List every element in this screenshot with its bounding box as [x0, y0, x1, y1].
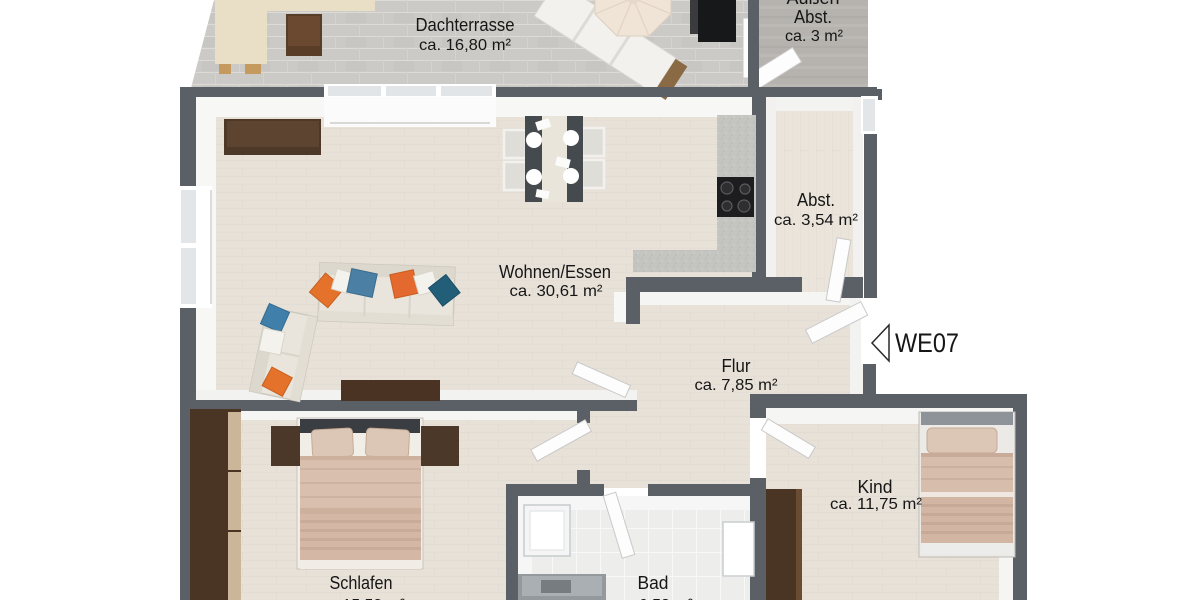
- svg-text:ca. 3 m²: ca. 3 m²: [785, 28, 843, 45]
- svg-text:Abst.: Abst.: [797, 190, 835, 210]
- svg-text:ca. 7,85 m²: ca. 7,85 m²: [695, 377, 778, 394]
- svg-text:ca. 3,54 m²: ca. 3,54 m²: [774, 212, 858, 229]
- svg-text:Dachterrasse: Dachterrasse: [416, 15, 515, 35]
- svg-text:ca. 16,80 m²: ca. 16,80 m²: [419, 37, 511, 54]
- svg-text:Wohnen/Essen: Wohnen/Essen: [499, 262, 611, 282]
- svg-text:Flur: Flur: [722, 356, 751, 376]
- svg-text:ca. 30,61 m²: ca. 30,61 m²: [510, 283, 603, 300]
- svg-text:ca. 11,75 m²: ca. 11,75 m²: [830, 496, 922, 513]
- svg-text:Schlafen: Schlafen: [330, 573, 393, 593]
- svg-text:Kind: Kind: [858, 477, 893, 497]
- svg-text:WE07: WE07: [895, 328, 959, 358]
- svg-text:Abst.: Abst.: [794, 7, 832, 27]
- svg-text:Bad: Bad: [638, 573, 669, 593]
